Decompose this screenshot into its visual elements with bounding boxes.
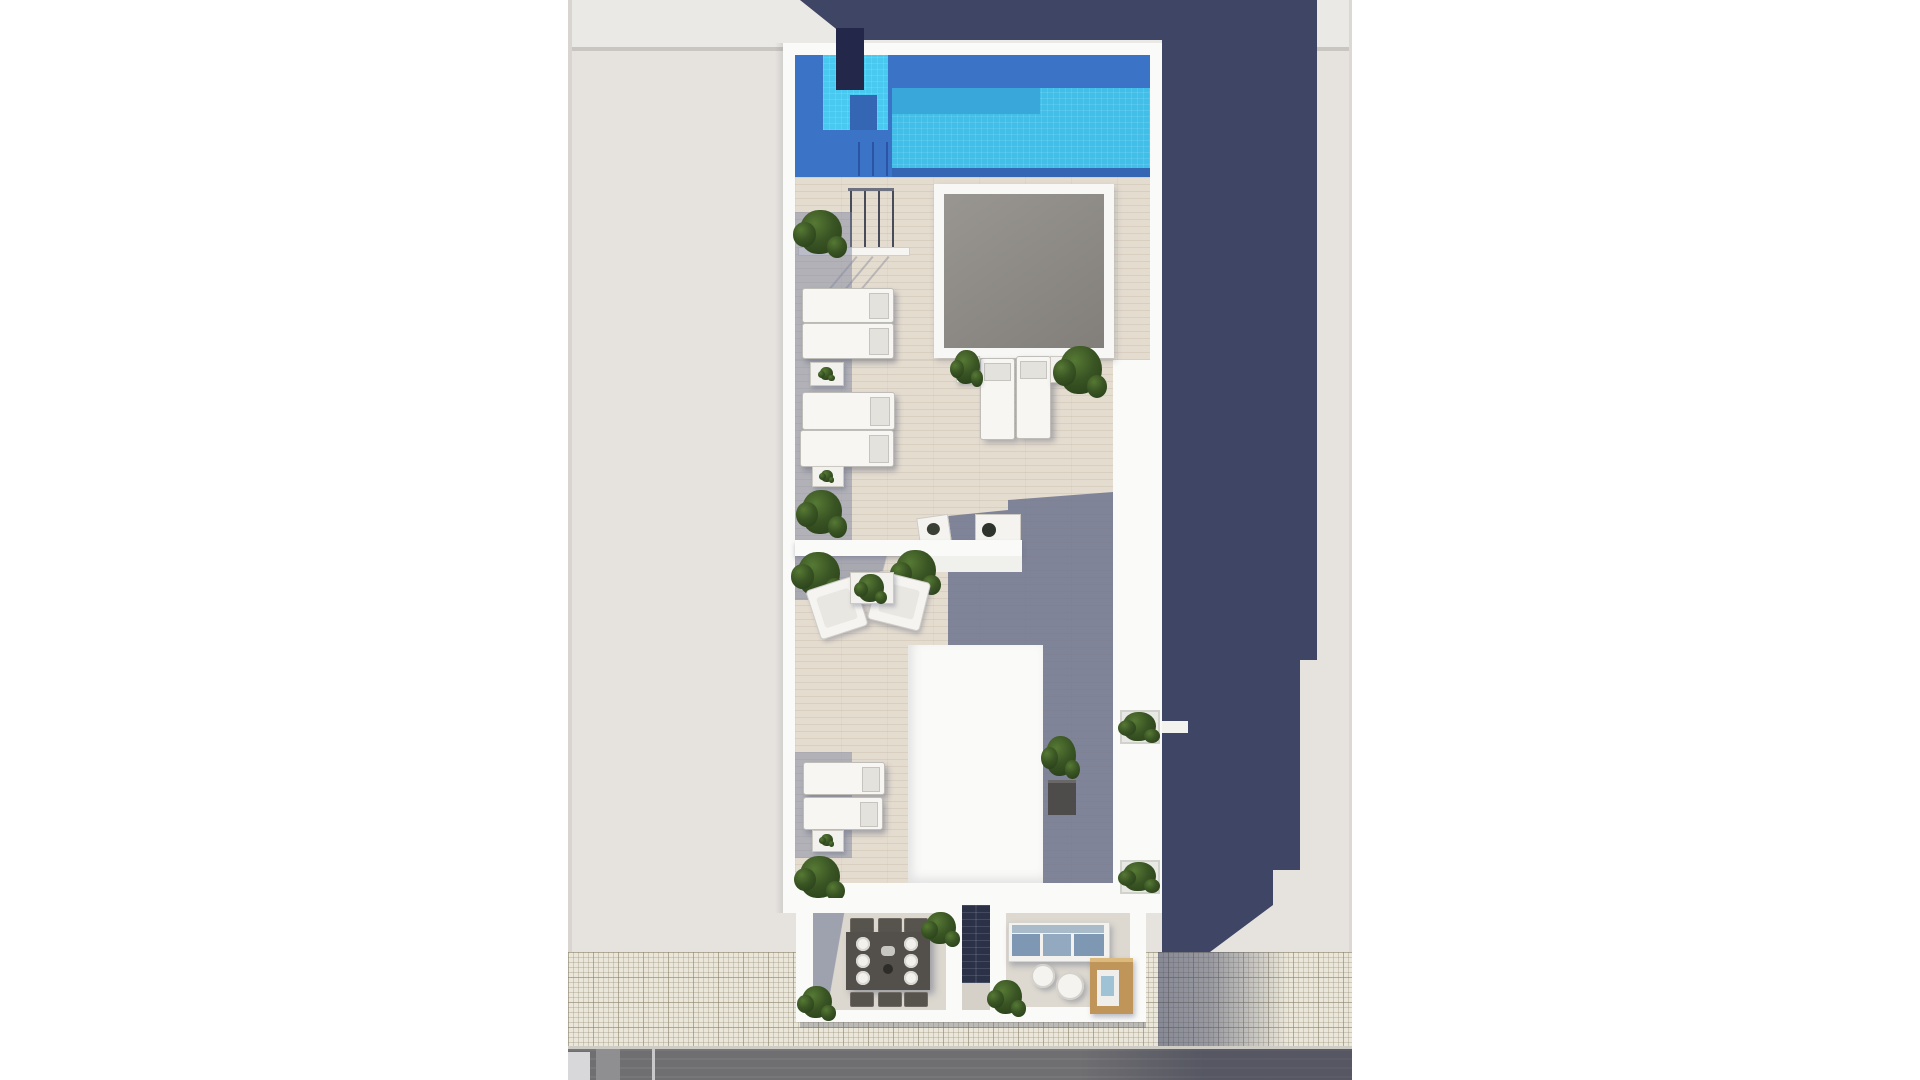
dining-plate [904,971,918,985]
dining-chair [850,992,874,1007]
dining-table [846,932,930,990]
sun-lounger [1016,356,1051,439]
plant [1046,736,1076,776]
road-marking-line [652,1049,655,1080]
dining-plate [856,954,870,968]
dining-chair [850,918,874,933]
plant [858,574,884,602]
dining-plate [856,937,870,951]
sun-lounger [800,430,894,467]
sofa-cushion [1043,934,1071,956]
stair-railing-post [878,190,880,247]
render-canvas [0,0,1920,1080]
chair-cushion [926,522,941,536]
sun-lounger [980,358,1015,440]
sun-lounger [802,323,894,359]
ground-right-edge [1349,0,1352,1080]
kitchen-sink [1101,976,1114,996]
plant [802,490,842,534]
sofa-backrest [1012,925,1104,933]
plant [802,986,832,1018]
potted-plant [820,367,833,380]
pool-bottom-edge [892,168,1150,177]
wall-planter [1120,860,1160,894]
plant [1060,346,1102,394]
dining-plate [904,954,918,968]
pool-wall-shadow-band [892,55,1150,88]
plant [800,856,840,898]
side-table [812,830,844,852]
sofa-cushion [1012,934,1040,956]
road-shadow-right [1080,1049,1352,1080]
potted-plant [821,834,833,846]
planter-ledge [1162,721,1188,733]
dining-chair [904,992,928,1007]
entrance-door [962,905,990,983]
pool-ladder-rail [858,142,860,176]
plant [926,912,956,944]
sofa [1008,922,1110,962]
terrace-sidewalk-shadow [800,1022,1146,1028]
stair-railing-post [864,190,866,247]
side-table [810,362,844,386]
plant [954,350,980,384]
sun-lounger [802,392,895,430]
door-threshold [962,983,990,1010]
dining-chair [878,918,902,933]
divider-wall-face [930,556,1022,572]
skylight [944,194,1104,348]
dining-chair [878,992,902,1007]
pool-ladder-rail [886,142,888,176]
pool-pillar [836,28,864,90]
planter-plant [1123,712,1156,741]
stair-bulkhead [908,645,1043,883]
stair-railing-post [892,190,894,247]
outdoor-kitchen [1090,958,1133,1014]
table-pot [982,523,996,537]
plant [992,980,1022,1014]
pool-ladder-rail [872,142,874,176]
sun-lounger [802,288,894,323]
serving-dish [881,946,895,956]
sun-lounger [803,797,883,830]
pool-step-shadow [850,95,877,130]
sun-lounger [803,762,885,795]
stair-railing-top [848,188,894,191]
road-marking-band [596,1049,620,1080]
plant [800,210,842,254]
planter-plant [1123,862,1156,891]
round-table [1056,972,1084,1000]
dining-plate [856,971,870,985]
road-marking-bright [568,1052,590,1080]
round-table [1031,964,1055,988]
barbecue [1048,780,1076,815]
potted-plant [821,470,833,482]
center-pot [883,964,893,974]
sidewalk-shadow [1158,952,1288,1046]
pool-mid-reflection [892,88,1040,114]
wall-planter [1120,710,1160,744]
side-table [812,466,844,487]
ground-left-edge [568,0,572,1080]
building-left-wall-shadow [775,43,783,913]
sofa-cushion [1074,934,1104,956]
dining-plate [904,937,918,951]
